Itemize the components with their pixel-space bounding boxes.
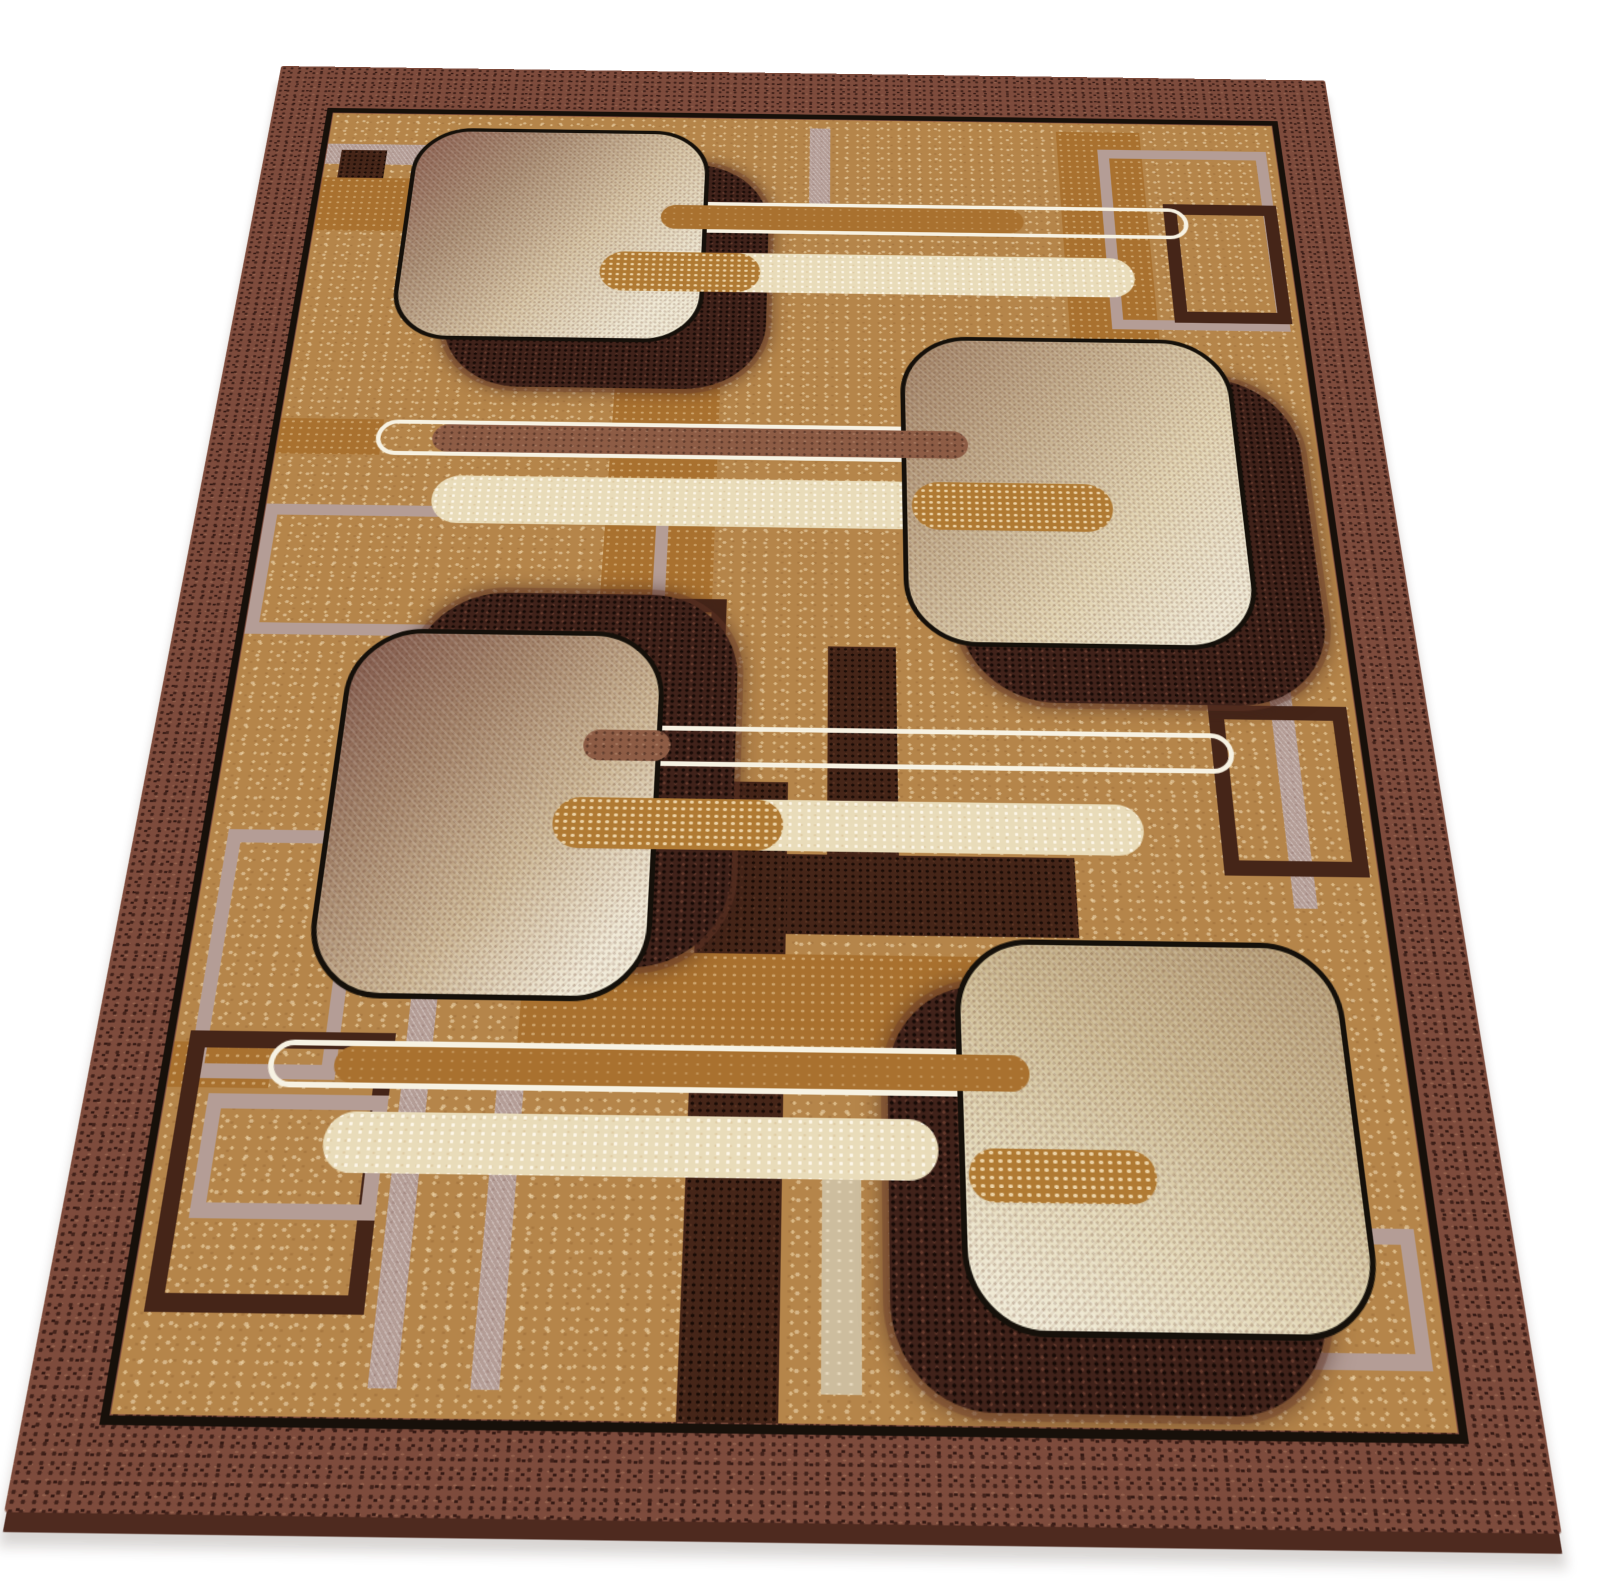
pill-caramel-inner-1 (660, 205, 1024, 234)
pill-caramel-speckled-3 (551, 797, 784, 851)
deco-stripe-pale (821, 1148, 862, 1395)
rug-photo (0, 0, 1600, 1594)
deco-rect-espresso (1207, 705, 1370, 877)
pill-white-outline-3 (638, 725, 1236, 774)
rug-square-1 (387, 128, 711, 344)
rug-square-4 (953, 938, 1386, 1342)
deco-stripe-mauve (470, 1063, 525, 1390)
pill-cream-4 (319, 1111, 939, 1181)
rug-field (111, 113, 1458, 1433)
pill-caramel-inner-3 (582, 729, 671, 761)
pill-cream-2 (429, 475, 930, 529)
rug (4, 66, 1562, 1534)
product-photo-canvas (0, 0, 1600, 1594)
pill-caramel-speckled-1 (598, 251, 761, 292)
deco-bar-caramel (275, 418, 384, 455)
pill-caramel-speckled-2 (911, 482, 1114, 532)
pill-caramel-speckled-4 (968, 1148, 1159, 1205)
